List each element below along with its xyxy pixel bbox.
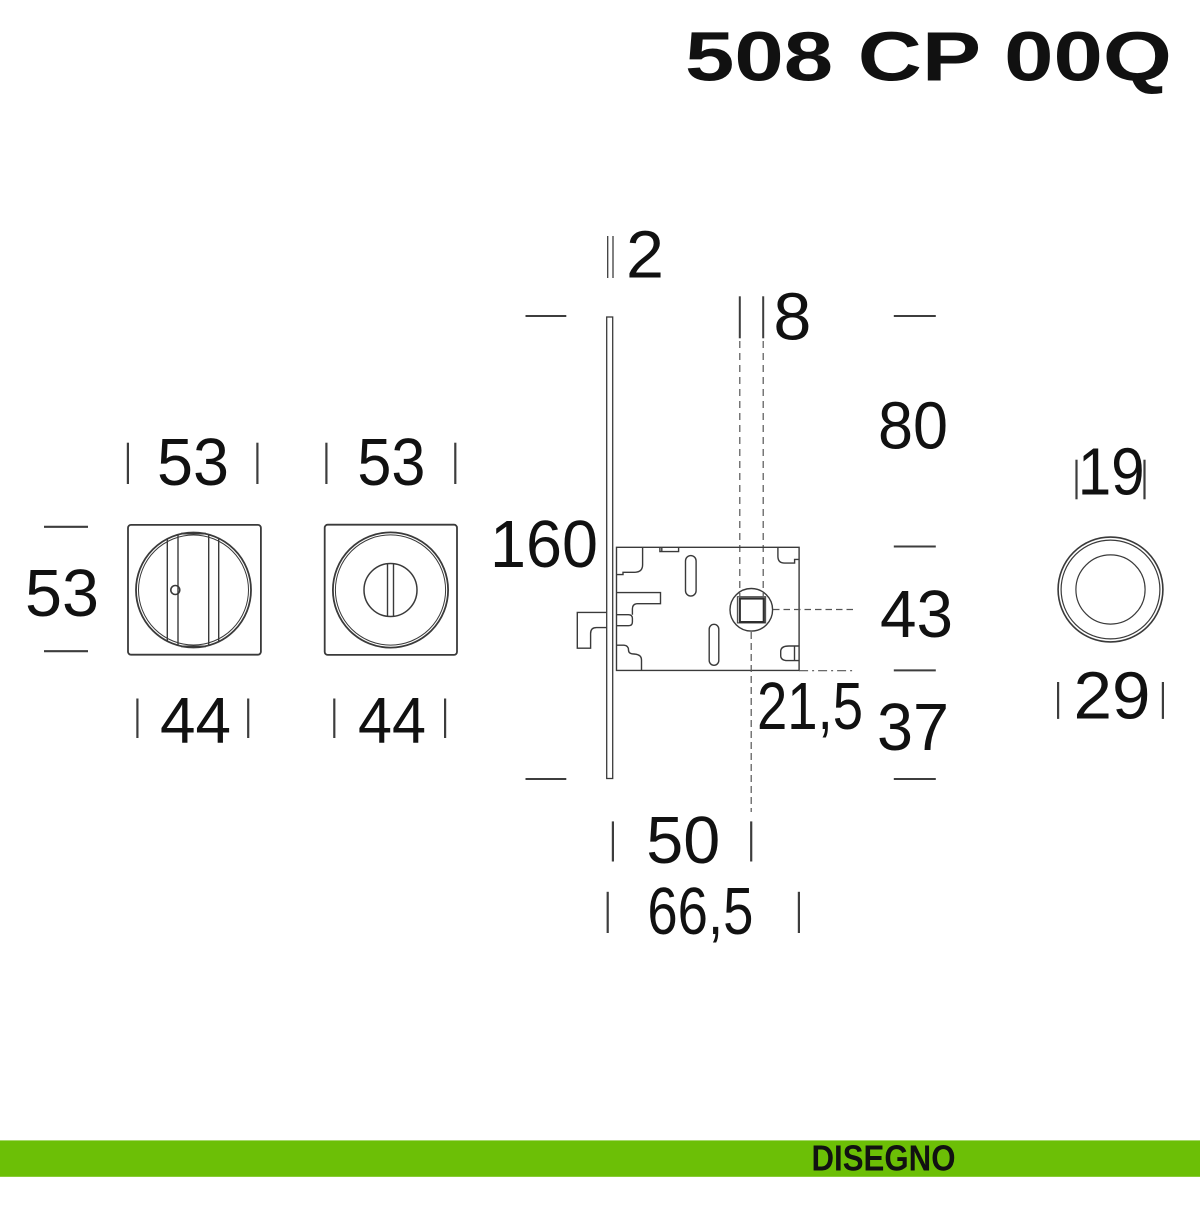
svg-text:508 CP 00Q: 508 CP 00Q	[685, 18, 1172, 96]
svg-text:29: 29	[1074, 659, 1151, 734]
svg-text:DISEGNO: DISEGNO	[812, 1138, 956, 1179]
svg-text:19: 19	[1078, 434, 1145, 509]
svg-text:53: 53	[357, 425, 425, 500]
svg-text:66,5: 66,5	[647, 874, 753, 949]
svg-text:21,5: 21,5	[757, 669, 863, 744]
svg-text:44: 44	[160, 684, 231, 757]
svg-text:50: 50	[646, 803, 720, 878]
svg-text:2: 2	[626, 218, 664, 293]
svg-text:53: 53	[25, 556, 99, 631]
svg-text:80: 80	[878, 389, 948, 464]
svg-text:53: 53	[157, 425, 229, 500]
svg-text:160: 160	[490, 507, 598, 582]
svg-text:44: 44	[358, 684, 426, 757]
svg-text:37: 37	[877, 690, 949, 765]
svg-text:43: 43	[880, 577, 953, 652]
svg-text:8: 8	[773, 280, 811, 355]
